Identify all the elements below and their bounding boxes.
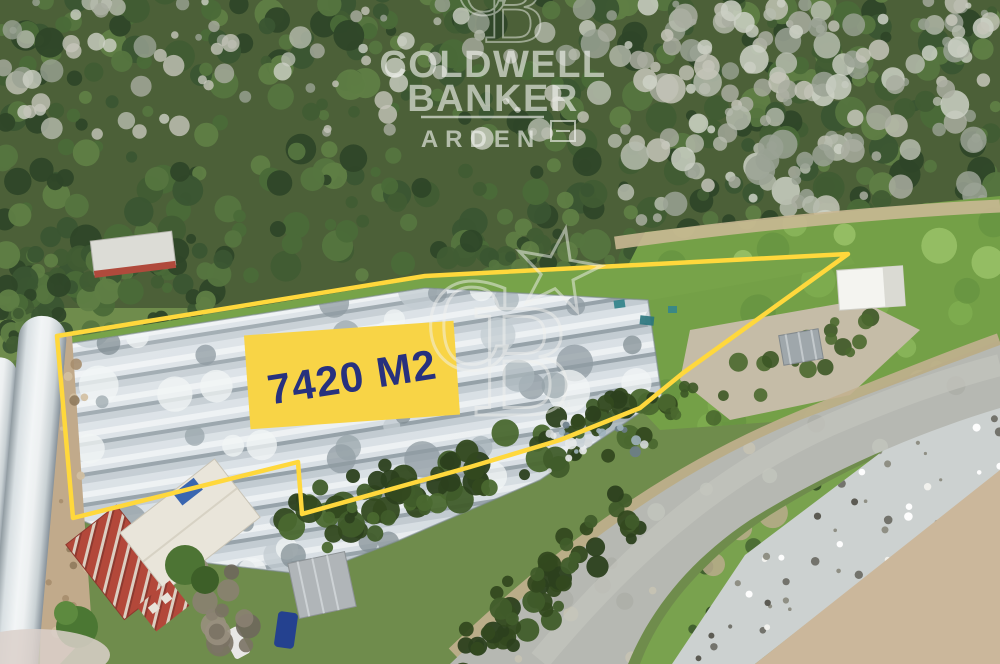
aerial-listing-photo: C B: [0, 0, 1000, 664]
white-house-right: [837, 266, 906, 311]
aerial-photo-canvas: C B: [0, 0, 1000, 664]
green-tree: [191, 566, 219, 594]
arden-text: ARDEN: [421, 126, 541, 153]
banker-text: BANKER: [407, 78, 579, 120]
tm-text: TM: [556, 401, 570, 412]
small-shed-right: [779, 329, 824, 365]
gray-shed: [288, 552, 356, 619]
green-tree: [54, 601, 78, 625]
